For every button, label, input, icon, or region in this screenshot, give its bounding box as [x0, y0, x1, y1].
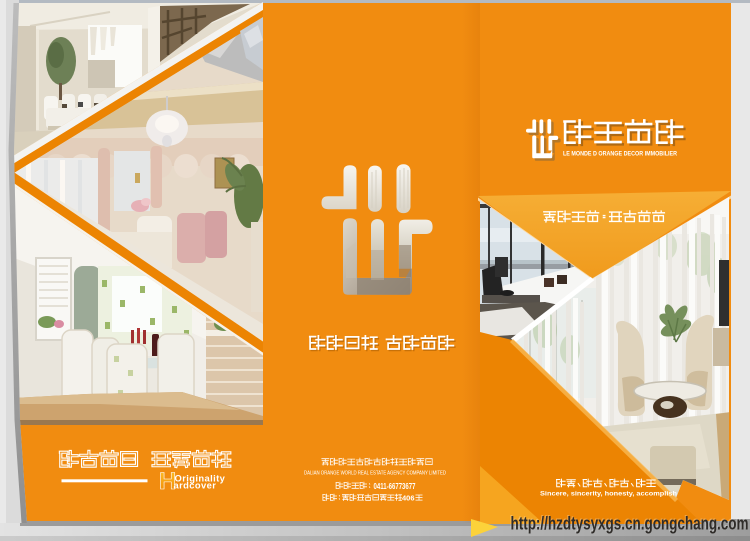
svg-text:Sincere, sincerity, honesty, a: Sincere, sincerity, honesty, accomplish [540, 491, 677, 498]
svg-text:http://hzdtysyxgs.cn.gongchang: http://hzdtysyxgs.cn.gongchang.com [511, 514, 749, 534]
svg-text:DALIAN ORANGE WORLD REAL ESTAT: DALIAN ORANGE WORLD REAL ESTATE AGENCY C… [304, 470, 446, 476]
svg-text:406: 406 [402, 494, 415, 503]
svg-text:LE MONDE D ORANGE DECOR IMMOBI: LE MONDE D ORANGE DECOR IMMOBILIER [563, 151, 677, 158]
svg-text:0411-66773677: 0411-66773677 [374, 482, 416, 491]
svg-text:ardcover: ardcover [174, 479, 217, 490]
